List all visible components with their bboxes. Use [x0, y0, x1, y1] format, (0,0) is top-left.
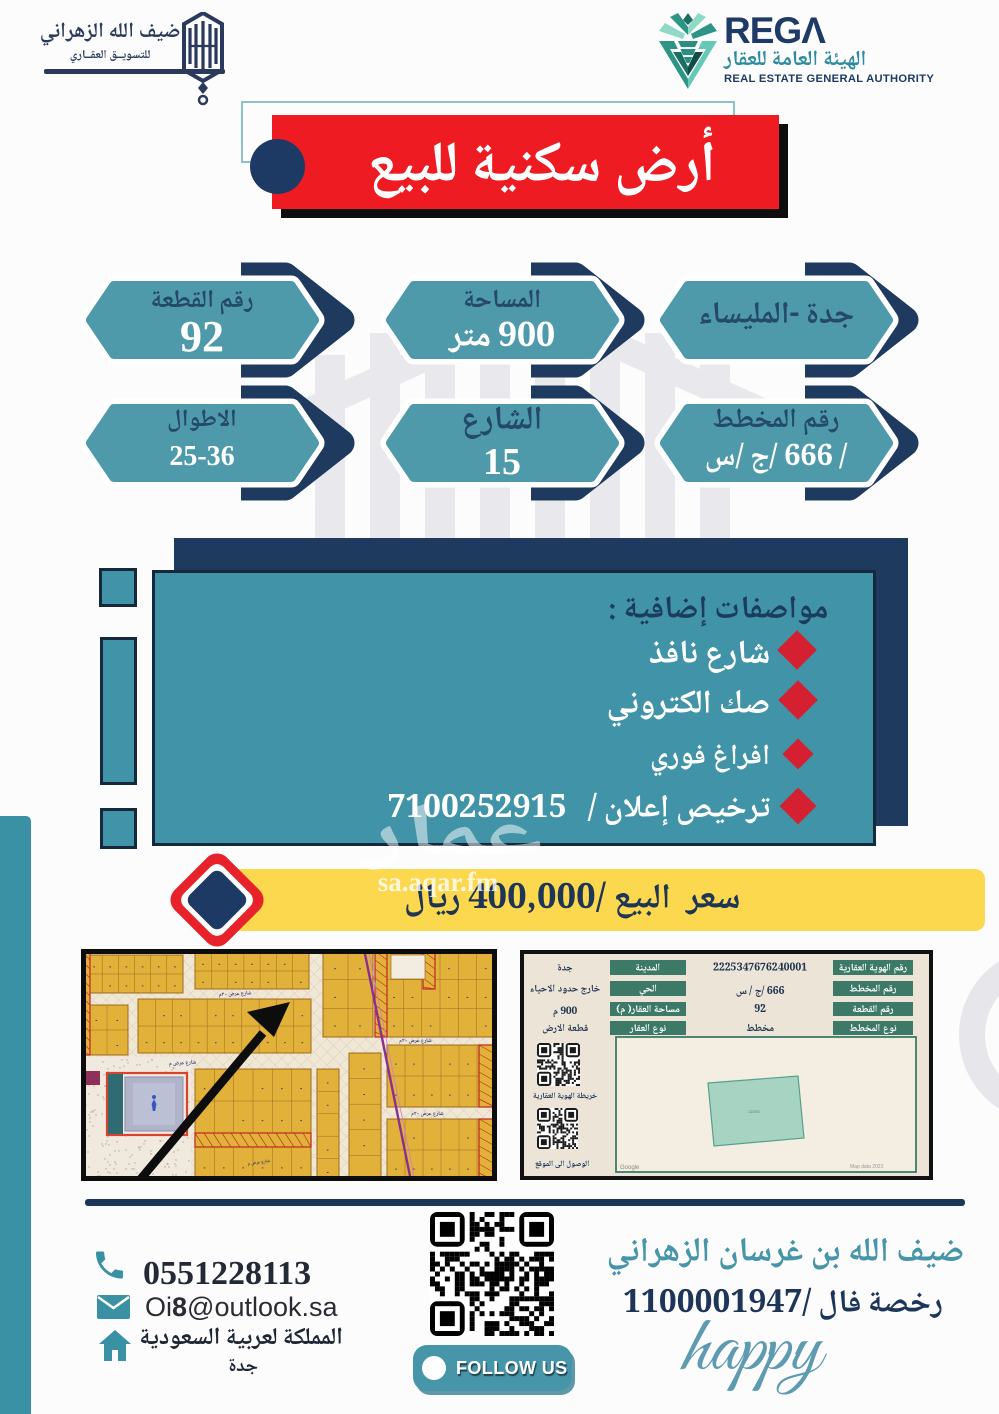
svg-text:22253: 22253	[748, 1109, 760, 1114]
svg-text:شارع عرض م: شارع عرض م	[169, 1059, 197, 1069]
svg-text:شارع عرض ٢٠م: شارع عرض ٢٠م	[219, 989, 252, 1000]
svg-text:Map data 2023: Map data 2023	[850, 1164, 884, 1170]
svg-text:خارج حدود الاحياء: خارج حدود الاحياء	[530, 982, 601, 999]
svg-text:رقم القطعة: رقم القطعة	[852, 1002, 893, 1019]
svg-text:الحي: الحي	[639, 982, 658, 999]
svg-text:رقم المخطط: رقم المخطط	[850, 982, 897, 999]
svg-text:جدة: جدة	[557, 961, 573, 978]
svg-text:مساحة العقار( م): مساحة العقار( م)	[616, 1002, 680, 1019]
svg-text:نوع المخطط: نوع المخطط	[849, 1021, 896, 1038]
svg-text:رقم الهوية العقارية: رقم الهوية العقارية	[839, 961, 908, 978]
svg-text:نوع العقار: نوع العقار	[629, 1021, 666, 1038]
svg-text:خريطة الهوية العقارية: خريطة الهوية العقارية	[533, 1090, 597, 1104]
svg-text:المدينة: المدينة	[636, 961, 661, 978]
svg-text:92: 92	[754, 1001, 766, 1019]
svg-text:مخطط: مخطط	[746, 1020, 774, 1038]
svg-text:قطعة الارض: قطعة الارض	[542, 1021, 588, 1038]
svg-text:Google: Google	[620, 1165, 640, 1171]
svg-text:2225347676240001: 2225347676240001	[713, 960, 807, 978]
svg-text:الوصول الى الموقع: الوصول الى الموقع	[535, 1158, 590, 1172]
svg-text:شارع عرض ٢٠م: شارع عرض ٢٠م	[399, 1037, 432, 1046]
svg-text:شارع عرض ٢٠م: شارع عرض ٢٠م	[411, 1110, 444, 1119]
